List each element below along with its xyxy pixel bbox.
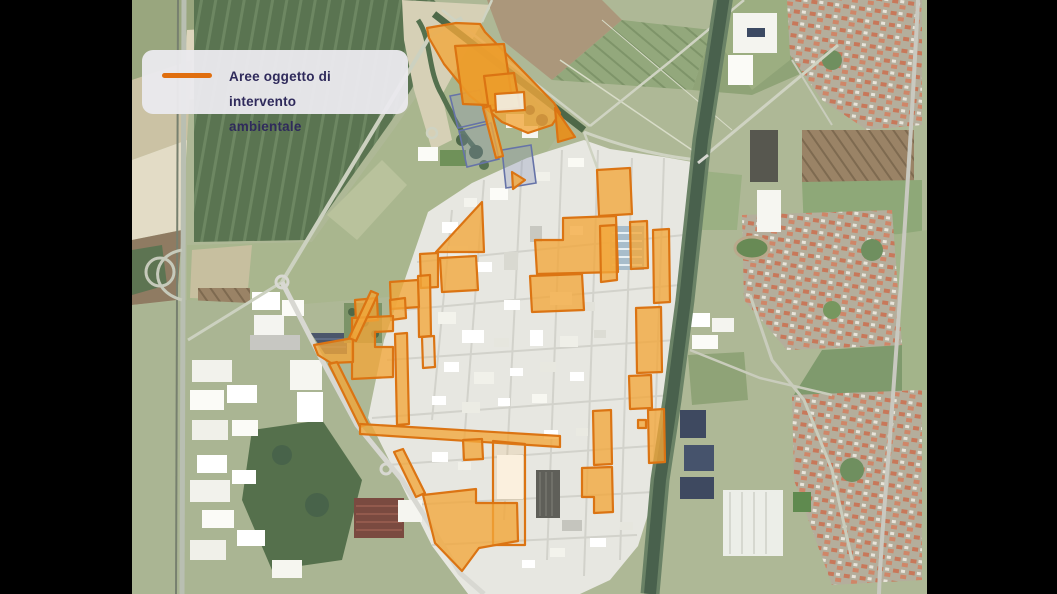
intervention-area-south-hanging-rect — [463, 439, 483, 460]
intervention-area-canal-col-2 — [630, 221, 648, 269]
intervention-area-canal-col-3 — [653, 229, 670, 303]
intervention-area-nw-quad-2 — [440, 256, 478, 292]
big-white-warehouse — [723, 490, 783, 556]
intervention-area-west-outline-rect — [422, 336, 435, 368]
red-roofed-warehouses — [354, 498, 404, 538]
dark-warehouse — [536, 470, 560, 518]
intervention-area-north-excluded-parcel — [495, 92, 525, 112]
legend: Aree oggetto di intervento ambientale — [142, 50, 408, 114]
dark-factory — [750, 130, 778, 182]
screenshot-frame: Aree oggetto di intervento ambientale — [0, 0, 1057, 594]
legend-swatch-line — [162, 73, 212, 78]
letterbox-right — [927, 0, 1057, 594]
legend-label-line1: Aree oggetto di intervento — [229, 64, 398, 114]
legend-label-line2: ambientale — [229, 114, 398, 139]
intervention-area-canal-col-5 — [629, 375, 652, 409]
intervention-area-canal-col-1 — [600, 225, 617, 282]
intervention-area-ind-mid-block — [530, 274, 584, 312]
legend-label: Aree oggetto di intervento ambientale — [229, 64, 398, 139]
letterbox-left — [0, 0, 132, 594]
intervention-area-canal-col-4 — [636, 307, 662, 373]
intervention-area-south-vertical-bar — [593, 410, 612, 465]
intervention-area-canal-col-6 — [648, 409, 665, 463]
intervention-area-west-thin-strip — [395, 333, 409, 425]
intervention-area-south-small-square — [638, 420, 646, 428]
intervention-area-ind-top-rect — [597, 168, 632, 216]
